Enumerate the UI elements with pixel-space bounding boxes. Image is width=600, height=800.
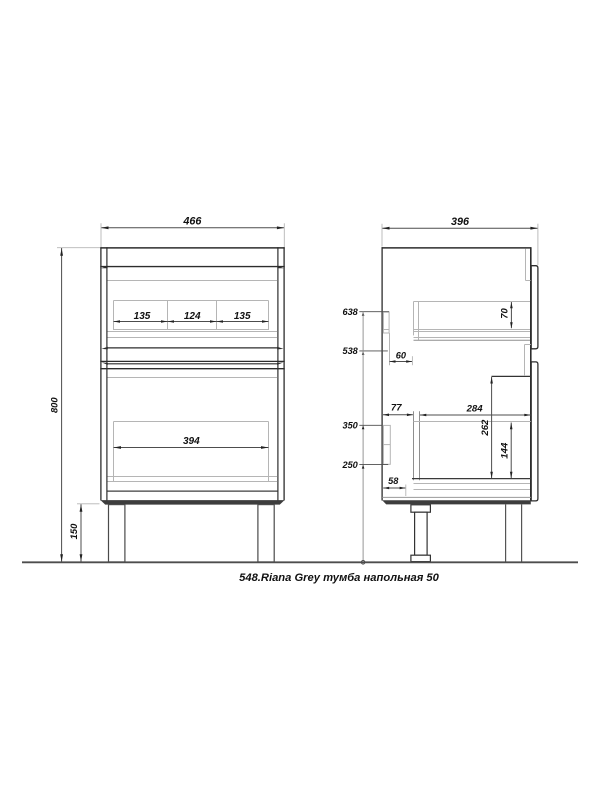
svg-text:548.Riana Grey тумба напольная: 548.Riana Grey тумба напольная 50: [239, 572, 440, 584]
svg-text:70: 70: [499, 308, 510, 319]
svg-text:135: 135: [134, 311, 151, 322]
svg-text:396: 396: [451, 216, 470, 228]
svg-text:135: 135: [234, 311, 251, 322]
svg-text:60: 60: [396, 350, 407, 360]
svg-text:262: 262: [480, 419, 491, 437]
svg-text:800: 800: [49, 397, 60, 413]
svg-text:77: 77: [391, 402, 402, 413]
svg-text:150: 150: [68, 523, 79, 539]
svg-text:144: 144: [500, 442, 511, 459]
svg-text:124: 124: [184, 311, 201, 322]
svg-text:538: 538: [342, 346, 358, 356]
svg-text:250: 250: [341, 460, 358, 470]
svg-text:638: 638: [342, 307, 358, 317]
svg-text:58: 58: [388, 476, 399, 486]
svg-text:466: 466: [182, 216, 202, 228]
svg-text:284: 284: [466, 403, 484, 414]
svg-text:350: 350: [342, 421, 358, 431]
svg-text:394: 394: [183, 436, 200, 447]
